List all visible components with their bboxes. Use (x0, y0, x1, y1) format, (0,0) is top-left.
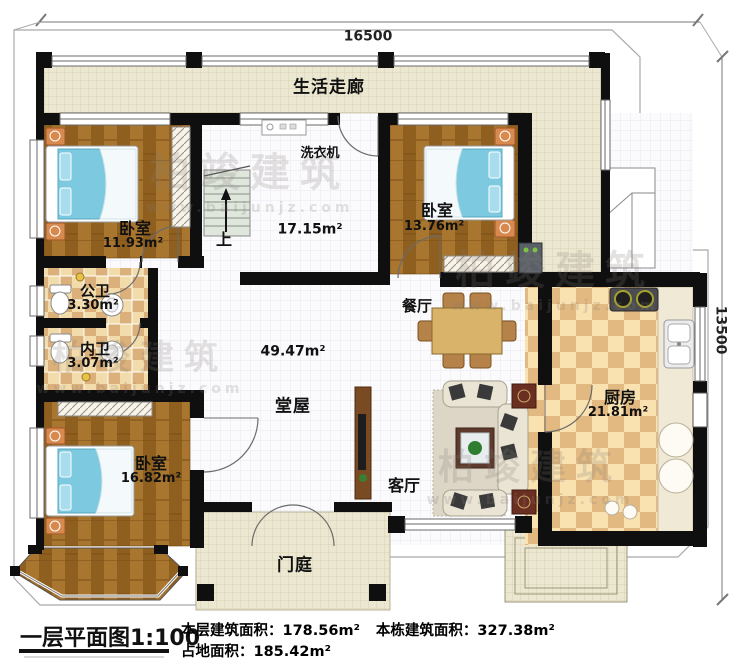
plan-title: 一层平面图1:100 (20, 620, 200, 652)
room-label-public-bath: 公卫 (80, 283, 110, 300)
side-table-2 (512, 490, 536, 514)
area-summary: 本层建筑面积：178.56m²本栋建筑面积：327.38m² 占地面积：185.… (181, 621, 555, 662)
title-underline-shadow (24, 656, 164, 658)
footer-bar: 一层平面图1:100 本层建筑面积：178.56m²本栋建筑面积：327.38m… (0, 612, 750, 662)
washing-machine-label: 洗衣机 (300, 147, 339, 161)
wardrobe-bedroom1 (172, 127, 190, 227)
tv-stand (355, 387, 371, 499)
room-area-public-bath: 3.30m² (67, 299, 118, 313)
room-label-corridor: 生活走廊 (293, 79, 365, 98)
wardrobe-bedroom2 (444, 256, 514, 272)
kitchen-sink (664, 320, 694, 368)
laundry-area-label: 17.15m² (277, 222, 342, 237)
land-area-value: 185.42m² (254, 644, 331, 660)
land-area-label: 占地面积： (181, 644, 254, 660)
room-label-living: 客厅 (388, 477, 420, 495)
room-label-porch: 门庭 (277, 557, 313, 576)
room-area-bedroom3: 16.82m² (121, 472, 181, 486)
room-label-dining: 餐厅 (402, 298, 432, 315)
floor-area-value: 178.56m² (283, 623, 360, 639)
building-area-value: 327.38m² (477, 623, 554, 639)
room-area-bedroom2: 13.76m² (404, 220, 464, 234)
staircase (204, 166, 250, 236)
dimension-right-label: 13500 (712, 306, 727, 355)
room-label-inner-bath: 内卫 (80, 341, 110, 358)
stove (610, 288, 658, 311)
room-area-inner-bath: 3.07m² (67, 357, 118, 371)
chimney-shaft (607, 168, 655, 268)
fridge (519, 243, 542, 273)
room-label-bedroom2: 卧室 (421, 202, 453, 220)
floorplan-page: 柏竣建筑 www.baijunjz.com 柏竣建筑 www.baijunjz.… (0, 0, 750, 662)
building-area-label: 本栋建筑面积： (376, 623, 478, 639)
side-table-1 (512, 384, 536, 408)
room-area-bedroom1: 11.93m² (103, 237, 163, 251)
room-label-hall: 堂屋 (275, 398, 311, 417)
title-underline (19, 649, 169, 653)
kitchen-rear-door (693, 393, 707, 427)
washing-machine (262, 120, 306, 135)
floor-area-label: 本层建筑面积： (181, 623, 283, 639)
stair-up-label: 上 (216, 231, 232, 249)
room-area-hall: 49.47m² (260, 344, 325, 359)
closet-bedroom3 (58, 402, 152, 416)
living-room-set (433, 381, 536, 516)
room-area-kitchen: 21.81m² (588, 406, 648, 420)
dimension-top-label: 16500 (344, 29, 393, 44)
